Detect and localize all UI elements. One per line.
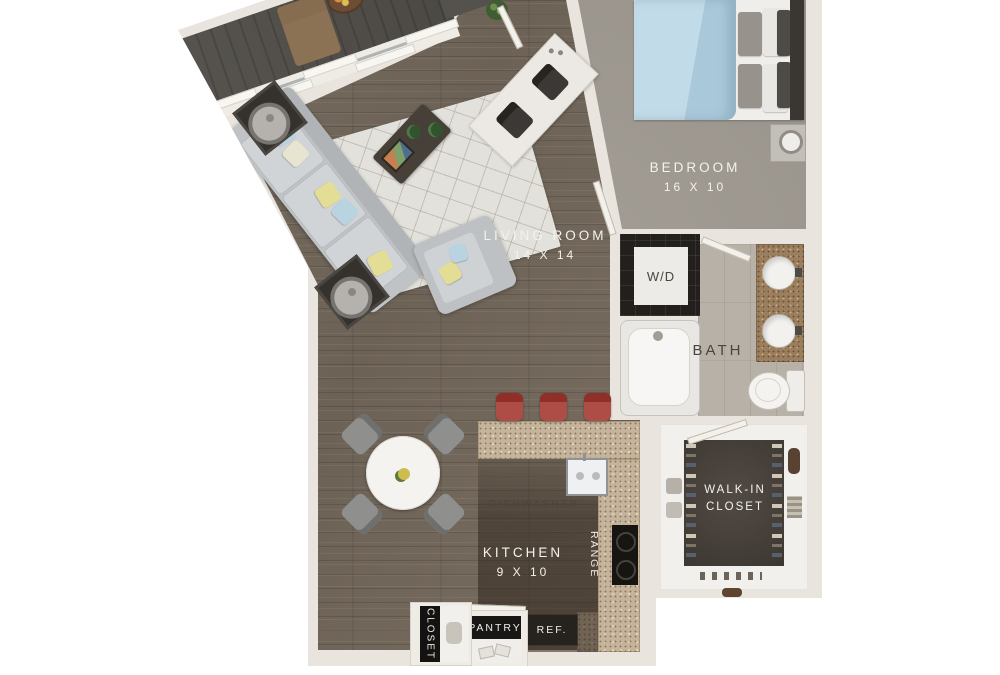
plant-icon — [425, 119, 446, 140]
floor-plan: W/D BATH WALK-IN C — [0, 0, 1000, 675]
apartment-walls: W/D BATH WALK-IN C — [0, 0, 1000, 675]
bar-stool-icon — [540, 393, 567, 421]
entry-closet-item-icon — [446, 622, 462, 644]
accent-pillow — [777, 10, 791, 56]
sink-icon — [762, 314, 796, 348]
drain-icon — [592, 472, 600, 480]
pillow — [738, 12, 762, 56]
lamp-icon — [779, 130, 803, 154]
storage-box-icon — [666, 478, 682, 494]
walk-in-closet-label: WALK-IN CLOSET — [688, 482, 782, 517]
plant-icon — [404, 122, 424, 142]
pillow — [738, 64, 762, 108]
faucet-icon — [795, 268, 802, 277]
toilet-icon — [748, 368, 804, 412]
sink-icon — [762, 256, 796, 290]
shoe-icon — [722, 588, 742, 597]
kitchen-dims: 9 X 10 — [468, 563, 578, 581]
shoes-icon — [700, 572, 762, 580]
bathtub-icon — [620, 320, 700, 416]
bar-stool-icon — [496, 393, 523, 421]
breakfast-bar-counter — [478, 421, 640, 459]
accent-pillow — [777, 62, 791, 108]
refrigerator-label: REF. — [537, 624, 568, 636]
kitchen-label: KITCHEN 9 X 10 — [468, 543, 578, 581]
burner-icon — [616, 532, 636, 552]
kitchen-sink-icon — [566, 458, 608, 496]
dishwasher-label: DISHWASHER — [478, 498, 590, 510]
bed-icon — [634, 0, 804, 120]
faucet-icon — [795, 326, 802, 335]
bath-label: BATH — [684, 342, 752, 359]
basket-icon — [787, 496, 802, 518]
pantry-label-band: PANTRY — [469, 616, 521, 639]
duvet — [634, 0, 736, 120]
decor-dot — [557, 49, 564, 56]
desk-chair-icon — [495, 100, 535, 139]
entry-closet-label: CLOSET — [425, 608, 436, 660]
decor-dot — [548, 47, 555, 54]
bar-stool-icon — [584, 393, 611, 421]
laundry-closet: W/D — [620, 234, 700, 316]
storage-box-icon — [666, 502, 682, 518]
washer-dryer-icon: W/D — [634, 247, 688, 305]
drain-icon — [576, 472, 584, 480]
bedroom-dims: 16 X 10 — [630, 178, 760, 196]
pantry-item-icon — [494, 643, 511, 657]
burner-icon — [616, 560, 636, 580]
centerpiece-icon — [398, 468, 410, 480]
living-room-name: LIVING ROOM — [478, 226, 612, 246]
tray-art-icon — [381, 138, 415, 173]
desk-chair-icon — [530, 62, 570, 101]
pantry-floor — [469, 639, 521, 663]
living-room-dims: 14 X 14 — [478, 246, 612, 264]
headboard — [790, 0, 804, 120]
laundry-label: W/D — [647, 269, 675, 284]
bedroom-name: BEDROOM — [630, 158, 760, 178]
nightstand-icon — [770, 124, 806, 162]
kitchen-name: KITCHEN — [468, 543, 578, 563]
pantry-item-icon — [478, 646, 495, 660]
bag-icon — [788, 448, 800, 474]
walk-in-label-line1: WALK-IN — [688, 482, 782, 499]
entry-closet-label-band: CLOSET — [420, 606, 440, 662]
walk-in-label-line2: CLOSET — [688, 499, 782, 516]
tub-faucet-icon — [653, 331, 663, 341]
range-label: RANGE — [584, 525, 600, 585]
toilet-seat — [755, 378, 781, 402]
faucet-icon — [583, 453, 586, 461]
range-cooktop-icon — [612, 525, 638, 585]
vanity-counter — [756, 244, 804, 362]
pantry-label: PANTRY — [468, 622, 522, 634]
living-room-label: LIVING ROOM 14 X 14 — [478, 226, 612, 264]
refrigerator-icon: REF. — [526, 614, 578, 646]
bedroom-label: BEDROOM 16 X 10 — [630, 158, 760, 196]
